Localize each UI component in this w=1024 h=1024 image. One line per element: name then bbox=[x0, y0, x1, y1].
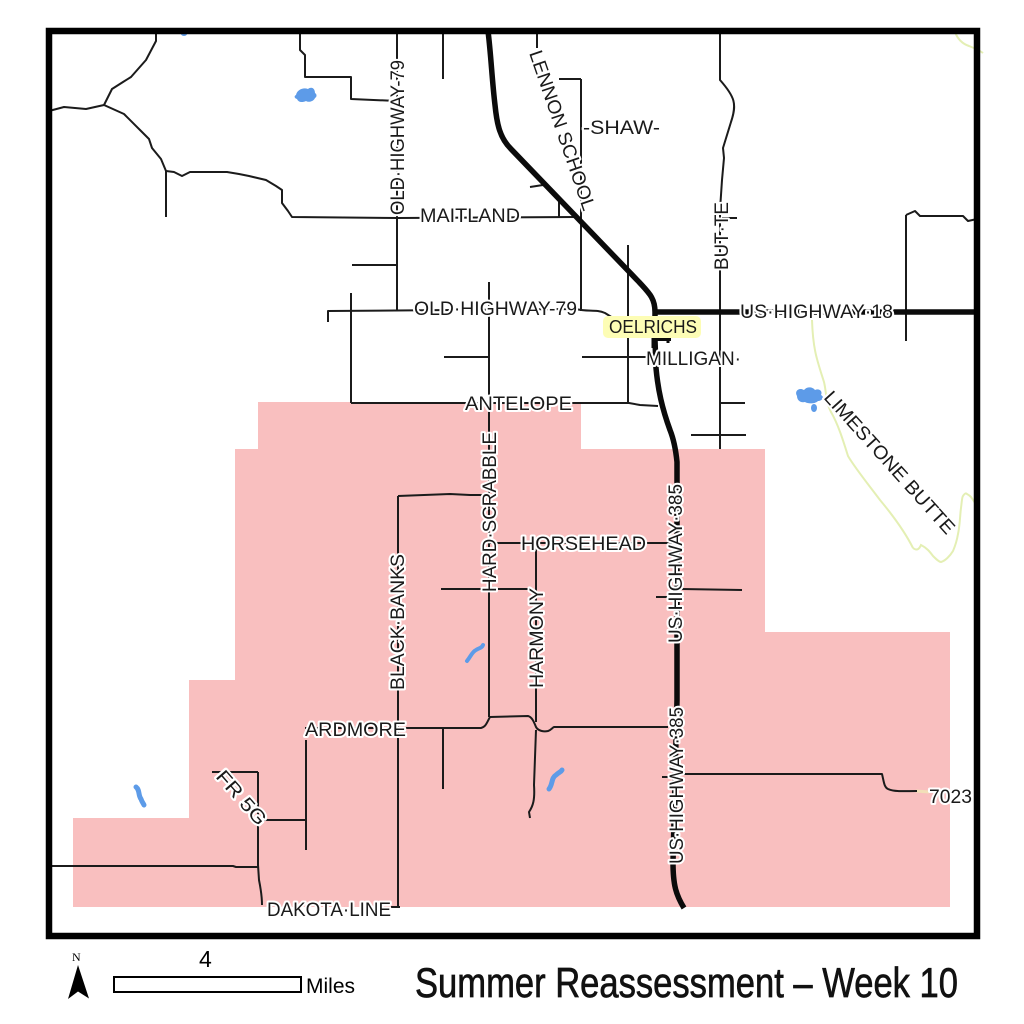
svg-text:HARMONY: HARMONY bbox=[527, 588, 548, 688]
svg-text:7023: 7023 bbox=[929, 787, 972, 808]
svg-text:OLD·HIGHWAY-79: OLD·HIGHWAY-79 bbox=[388, 60, 409, 215]
svg-text:ARDMORE: ARDMORE bbox=[305, 720, 406, 741]
svg-text:OELRICHS: OELRICHS bbox=[609, 317, 697, 337]
svg-text:US·HIGHWAY·18: US·HIGHWAY·18 bbox=[740, 302, 893, 323]
svg-text:Summer Reassessment – Week 10: Summer Reassessment – Week 10 bbox=[415, 959, 958, 1006]
svg-text:MILLIGAN·: MILLIGAN· bbox=[646, 349, 741, 370]
svg-text:OLD·HIGHWAY-79: OLD·HIGHWAY-79 bbox=[414, 299, 577, 320]
svg-text:MAITLAND: MAITLAND bbox=[420, 206, 520, 227]
svg-text:US·HIGHWAY·385: US·HIGHWAY·385 bbox=[667, 707, 688, 864]
svg-text:Miles: Miles bbox=[306, 975, 355, 998]
svg-text:BUT·TE: BUT·TE bbox=[712, 202, 733, 270]
svg-text:N: N bbox=[72, 950, 81, 964]
svg-text:US·HIGHWAY·385: US·HIGHWAY·385 bbox=[666, 484, 687, 643]
svg-text:DAKOTA·LINE: DAKOTA·LINE bbox=[267, 900, 391, 921]
svg-text:HARD·SCRABBLE: HARD·SCRABBLE bbox=[480, 432, 501, 592]
svg-text:-SHAW-: -SHAW- bbox=[583, 118, 660, 139]
svg-text:4: 4 bbox=[199, 946, 212, 972]
svg-text:HORSEHEAD: HORSEHEAD bbox=[521, 534, 646, 555]
svg-text:ANTELOPE: ANTELOPE bbox=[465, 394, 572, 415]
svg-text:BLACK·BANKS: BLACK·BANKS bbox=[388, 554, 409, 690]
